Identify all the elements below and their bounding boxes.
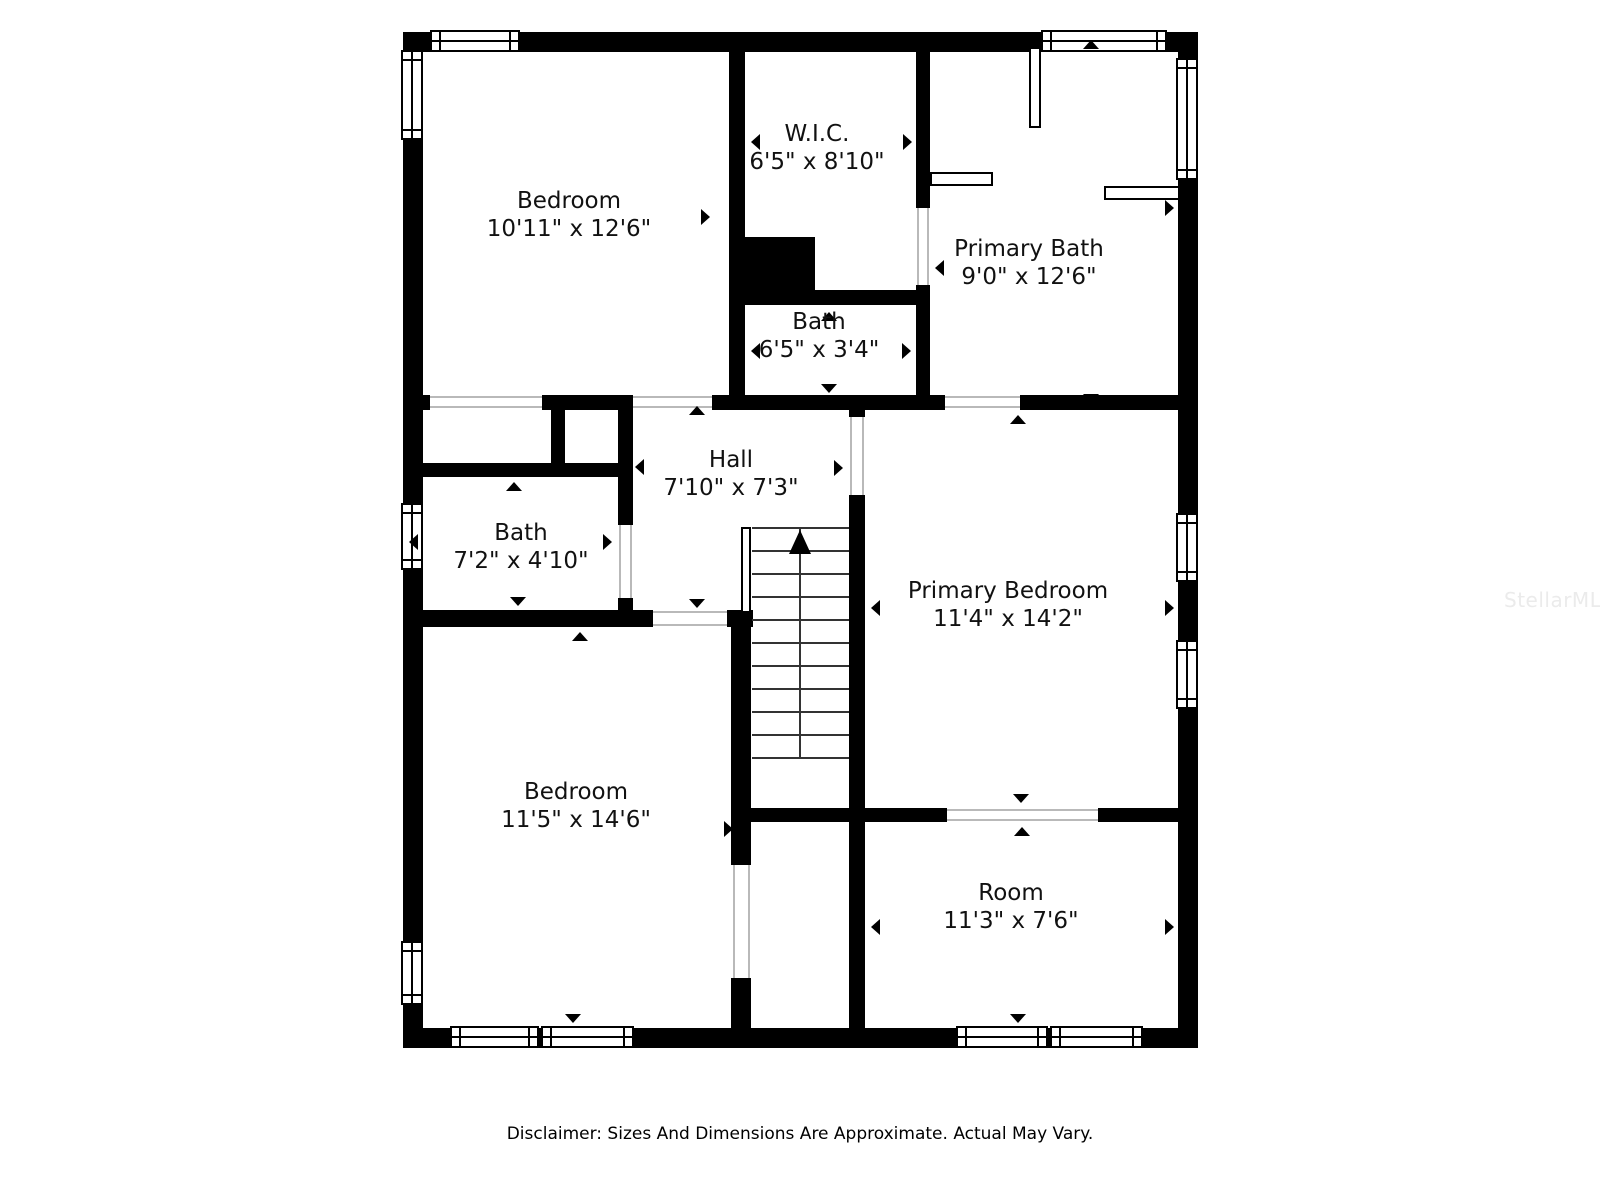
window-pane-line: [509, 32, 511, 50]
window-pane-line: [1050, 32, 1052, 50]
window: [1176, 640, 1198, 709]
window-pane-line: [403, 950, 421, 952]
stairs-up-arrow: [789, 530, 811, 554]
dimension-arrow: [635, 459, 644, 475]
room-label: Bedroom10'11" x 12'6": [487, 187, 651, 243]
door-threshold: [633, 396, 712, 398]
dimension-arrow: [903, 134, 912, 150]
room-dimensions: 10'11" x 12'6": [487, 215, 651, 243]
window: [401, 50, 423, 140]
dimension-arrow: [724, 821, 733, 837]
wall: [403, 610, 653, 627]
dimension-arrow: [871, 919, 880, 935]
window-pane-line: [1043, 40, 1165, 42]
window-pane-line: [543, 1036, 632, 1038]
door-threshold: [947, 819, 1098, 821]
door-threshold: [947, 809, 1098, 811]
window-pane-line: [452, 1036, 537, 1038]
door-threshold: [917, 208, 919, 285]
window-pane-line: [1178, 522, 1196, 524]
wall: [712, 395, 945, 410]
window: [1176, 58, 1198, 180]
window-pane-line: [403, 512, 421, 514]
dimension-arrow: [1013, 794, 1029, 803]
dimension-arrow: [902, 343, 911, 359]
dimension-arrow: [821, 384, 837, 393]
dimension-arrow: [1165, 919, 1174, 935]
door-threshold: [630, 525, 632, 598]
door-threshold: [945, 406, 1020, 408]
window-pane-line: [528, 1028, 530, 1046]
room-label: Primary Bedroom11'4" x 14'2": [908, 577, 1108, 633]
window-pane-line: [1178, 698, 1196, 700]
wall: [403, 463, 633, 477]
window: [956, 1026, 1048, 1048]
window-pane-line: [403, 559, 421, 561]
window-pane-line: [965, 1028, 967, 1046]
dimension-arrow: [572, 632, 588, 641]
wall: [849, 495, 865, 822]
dimension-arrow: [506, 482, 522, 491]
window-pane-line: [459, 1028, 461, 1046]
dimension-arrow: [1010, 415, 1026, 424]
stair-divider: [799, 527, 801, 757]
dimension-arrow: [1014, 827, 1030, 836]
room-label: W.I.C.6'5" x 8'10": [749, 120, 884, 176]
dimension-arrow: [1083, 394, 1099, 403]
window-pane-line: [1037, 1028, 1039, 1046]
wall: [618, 395, 633, 525]
room-name: W.I.C.: [749, 120, 884, 148]
wall: [731, 978, 751, 1028]
wall: [729, 237, 815, 305]
wall: [731, 808, 947, 822]
room-dimensions: 6'5" x 8'10": [749, 148, 884, 176]
window-pane-line: [411, 52, 413, 138]
window: [450, 1026, 539, 1048]
dimension-arrow: [834, 460, 843, 476]
room-dimensions: 9'0" x 12'6": [954, 263, 1104, 291]
door-threshold: [850, 417, 852, 495]
room-name: Primary Bath: [954, 235, 1104, 263]
window: [1041, 30, 1167, 52]
wall: [916, 52, 930, 208]
dimension-arrow: [871, 600, 880, 616]
window-pane-line: [432, 40, 518, 42]
dimension-arrow: [409, 819, 418, 835]
floor-plan-page: Bedroom10'11" x 12'6"W.I.C.6'5" x 8'10"P…: [0, 0, 1600, 1200]
room-name: Room: [943, 879, 1078, 907]
dimension-arrow: [689, 599, 705, 608]
dimension-arrow: [856, 292, 872, 301]
dimension-arrow: [1165, 600, 1174, 616]
dimension-arrow: [701, 209, 710, 225]
bath-fixture: [1104, 186, 1180, 200]
dimension-arrow: [935, 260, 944, 276]
dimension-arrow: [689, 406, 705, 415]
room-label: Bath6'5" x 3'4": [759, 308, 880, 364]
window-pane-line: [403, 129, 421, 131]
window: [541, 1026, 634, 1048]
door-threshold: [945, 396, 1020, 398]
room-label: Bedroom11'5" x 14'6": [501, 778, 651, 834]
dimension-arrow: [560, 395, 576, 404]
door-threshold: [430, 406, 542, 408]
room-label: Hall7'10" x 7'3": [663, 446, 798, 502]
room-dimensions: 7'10" x 7'3": [663, 474, 798, 502]
wall: [815, 290, 930, 305]
window: [1176, 513, 1198, 582]
room-label: Primary Bath9'0" x 12'6": [954, 235, 1104, 291]
room-dimensions: 11'3" x 7'6": [943, 907, 1078, 935]
room-dimensions: 11'5" x 14'6": [501, 806, 651, 834]
window-pane-line: [1156, 32, 1158, 50]
bath-fixture: [741, 527, 751, 613]
door-threshold: [748, 865, 750, 978]
dimension-arrow: [565, 1014, 581, 1023]
door-threshold: [619, 525, 621, 598]
dimension-arrow: [557, 40, 573, 49]
window-pane-line: [623, 1028, 625, 1046]
window-pane-line: [1178, 649, 1196, 651]
window-pane-line: [958, 1036, 1046, 1038]
window-pane-line: [1132, 1028, 1134, 1046]
dimension-arrow: [1010, 1014, 1026, 1023]
wall: [1020, 395, 1198, 410]
window-pane-line: [1178, 571, 1196, 573]
stair-tread: [752, 757, 849, 759]
bath-fixture: [930, 172, 993, 186]
window-pane-line: [439, 32, 441, 50]
room-label: Room11'3" x 7'6": [943, 879, 1078, 935]
wall: [916, 285, 930, 410]
bath-fixture: [1029, 47, 1041, 128]
window-pane-line: [550, 1028, 552, 1046]
window-pane-line: [1186, 60, 1188, 178]
dimension-arrow: [1165, 200, 1174, 216]
room-label: Bath7'2" x 4'10": [453, 519, 588, 575]
door-threshold: [862, 417, 864, 495]
wall: [849, 395, 865, 417]
door-threshold: [927, 208, 929, 285]
room-dimensions: 7'2" x 4'10": [453, 547, 588, 575]
room-name: Bedroom: [501, 778, 651, 806]
room-dimensions: 11'4" x 14'2": [908, 605, 1108, 633]
dimension-arrow: [510, 597, 526, 606]
room-name: Hall: [663, 446, 798, 474]
window-pane-line: [1178, 67, 1196, 69]
dimension-arrow: [409, 534, 418, 550]
wall: [1098, 808, 1178, 822]
door-threshold: [653, 611, 727, 613]
window: [430, 30, 520, 52]
wall: [849, 822, 865, 1028]
window-pane-line: [1059, 1028, 1061, 1046]
window-pane-line: [1178, 169, 1196, 171]
door-threshold: [653, 624, 727, 626]
wall: [731, 613, 751, 865]
window-pane-line: [1052, 1036, 1141, 1038]
window: [401, 941, 423, 1005]
room-name: Bath: [453, 519, 588, 547]
wall: [729, 52, 745, 410]
dimension-arrow: [603, 534, 612, 550]
dimension-arrow: [1083, 40, 1099, 49]
wall: [403, 395, 430, 410]
dimension-arrow: [409, 209, 418, 225]
dimension-arrow: [857, 40, 873, 49]
window: [1050, 1026, 1143, 1048]
room-name: Primary Bedroom: [908, 577, 1108, 605]
door-threshold: [430, 396, 542, 398]
window-pane-line: [403, 994, 421, 996]
watermark: StellarMLS: [1504, 588, 1600, 612]
wall: [551, 405, 565, 467]
room-name: Bath: [759, 308, 880, 336]
door-threshold: [733, 865, 735, 978]
room-name: Bedroom: [487, 187, 651, 215]
window-pane-line: [403, 59, 421, 61]
room-dimensions: 6'5" x 3'4": [759, 336, 880, 364]
disclaimer-text: Disclaimer: Sizes And Dimensions Are App…: [507, 1124, 1094, 1144]
